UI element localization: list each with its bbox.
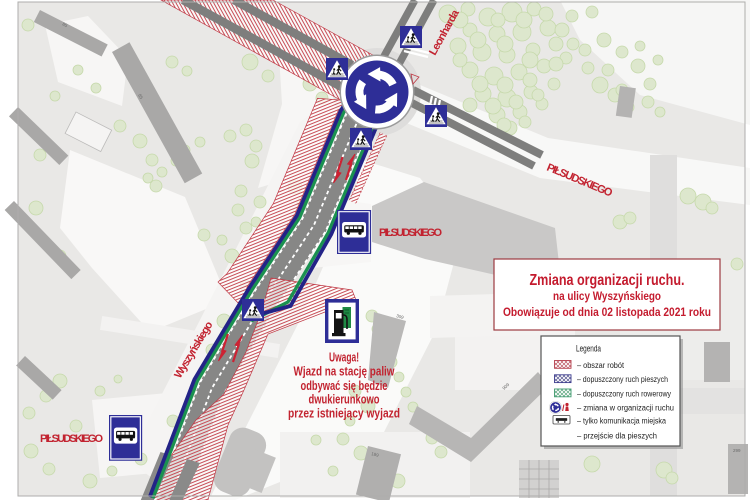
svg-text:przez istniejący wyjazd: przez istniejący wyjazd <box>288 407 400 421</box>
svg-text:– przejście dla pieszych: – przejście dla pieszych <box>577 431 657 440</box>
svg-text:Obowiązuje od dnia 02 listopad: Obowiązuje od dnia 02 listopada 2021 rok… <box>503 305 711 319</box>
svg-text:– dopuszczony ruch pieszych: – dopuszczony ruch pieszych <box>577 375 668 384</box>
svg-text:299: 299 <box>733 448 741 453</box>
svg-text:Zmiana organizacji ruchu.: Zmiana organizacji ruchu. <box>530 272 685 289</box>
svg-text:PIŁSUDSKIEGO: PIŁSUDSKIEGO <box>379 227 442 239</box>
svg-text:– zmiana w organizacji ruchu: – zmiana w organizacji ruchu <box>577 404 674 413</box>
svg-text:odbywać się będzie: odbywać się będzie <box>301 379 388 393</box>
svg-text:– tylko komunikacja miejska: – tylko komunikacja miejska <box>577 417 666 426</box>
svg-text:Wjazd na stację paliw: Wjazd na stację paliw <box>294 365 395 379</box>
svg-text:Uwaga!: Uwaga! <box>329 351 359 365</box>
svg-text:Legenda: Legenda <box>576 344 601 354</box>
svg-text:PIŁSUDSKIEGO: PIŁSUDSKIEGO <box>40 433 103 445</box>
svg-text:– obszar robót: – obszar robót <box>577 361 625 370</box>
svg-text:na ulicy Wyszyńskiego: na ulicy Wyszyńskiego <box>553 289 661 303</box>
svg-text:– dopuszczony ruch rowerowy: – dopuszczony ruch rowerowy <box>577 389 671 398</box>
svg-text:dwukierunkowo: dwukierunkowo <box>309 393 380 407</box>
